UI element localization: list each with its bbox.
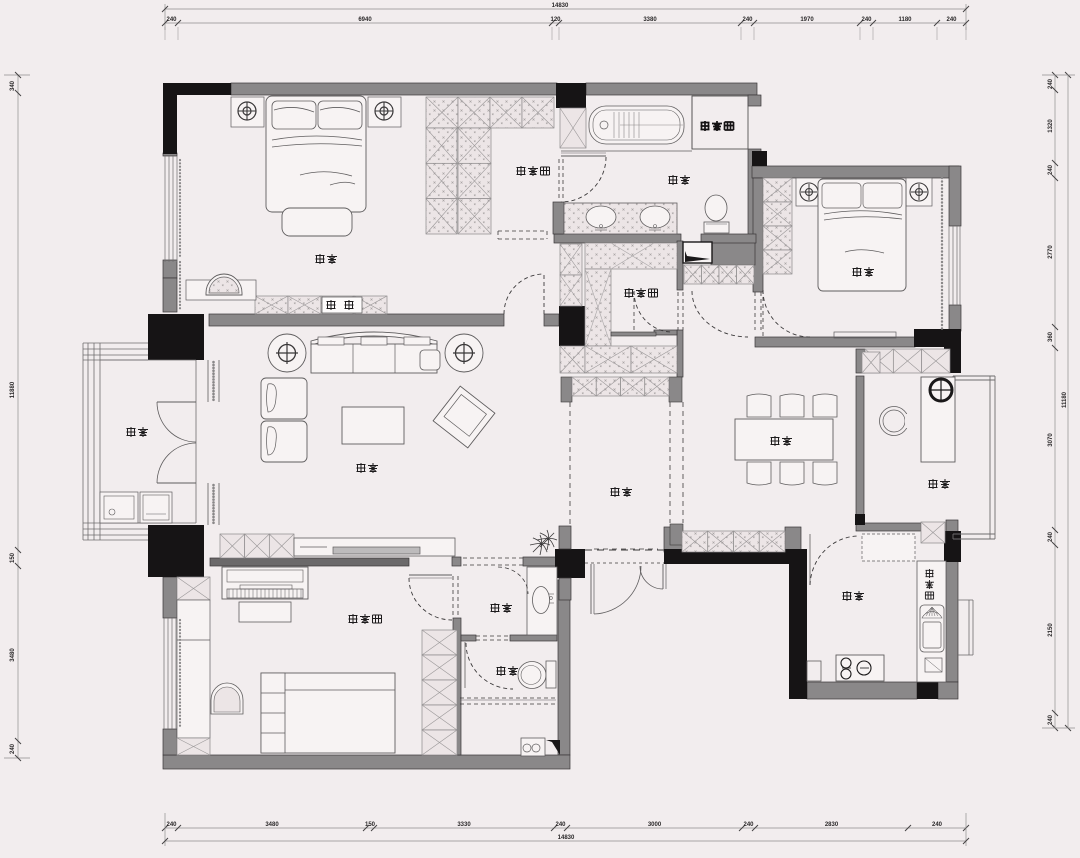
svg-text:120: 120 <box>550 17 561 23</box>
svg-text:240: 240 <box>1048 714 1054 725</box>
svg-text:240: 240 <box>1048 531 1054 542</box>
svg-text:6940: 6940 <box>358 17 372 23</box>
svg-text:1180: 1180 <box>898 17 912 23</box>
svg-text:360: 360 <box>1048 331 1054 342</box>
svg-text:240: 240 <box>932 822 943 828</box>
svg-text:14830: 14830 <box>552 3 569 9</box>
svg-text:240: 240 <box>166 822 177 828</box>
svg-text:1970: 1970 <box>800 17 814 23</box>
svg-text:240: 240 <box>166 17 177 23</box>
svg-text:240: 240 <box>1048 164 1054 175</box>
svg-text:2770: 2770 <box>1048 245 1054 259</box>
svg-text:3380: 3380 <box>643 17 657 23</box>
svg-text:240: 240 <box>10 743 16 754</box>
svg-text:240: 240 <box>861 17 872 23</box>
svg-text:340: 340 <box>10 80 16 91</box>
svg-text:11880: 11880 <box>10 381 16 398</box>
svg-text:150: 150 <box>10 552 16 563</box>
svg-text:3070: 3070 <box>1048 433 1054 447</box>
svg-text:3330: 3330 <box>457 822 471 828</box>
svg-text:3480: 3480 <box>265 822 279 828</box>
svg-text:240: 240 <box>743 822 754 828</box>
svg-text:2150: 2150 <box>1048 623 1054 637</box>
svg-text:240: 240 <box>946 17 957 23</box>
svg-text:2830: 2830 <box>825 822 839 828</box>
svg-text:240: 240 <box>555 822 566 828</box>
svg-text:3480: 3480 <box>10 648 16 662</box>
svg-text:11180: 11180 <box>1062 391 1068 408</box>
svg-text:240: 240 <box>742 17 753 23</box>
svg-text:1320: 1320 <box>1048 119 1054 133</box>
svg-text:14830: 14830 <box>558 835 575 841</box>
svg-text:3000: 3000 <box>648 822 662 828</box>
svg-text:150: 150 <box>365 822 376 828</box>
svg-text:240: 240 <box>1048 78 1054 89</box>
